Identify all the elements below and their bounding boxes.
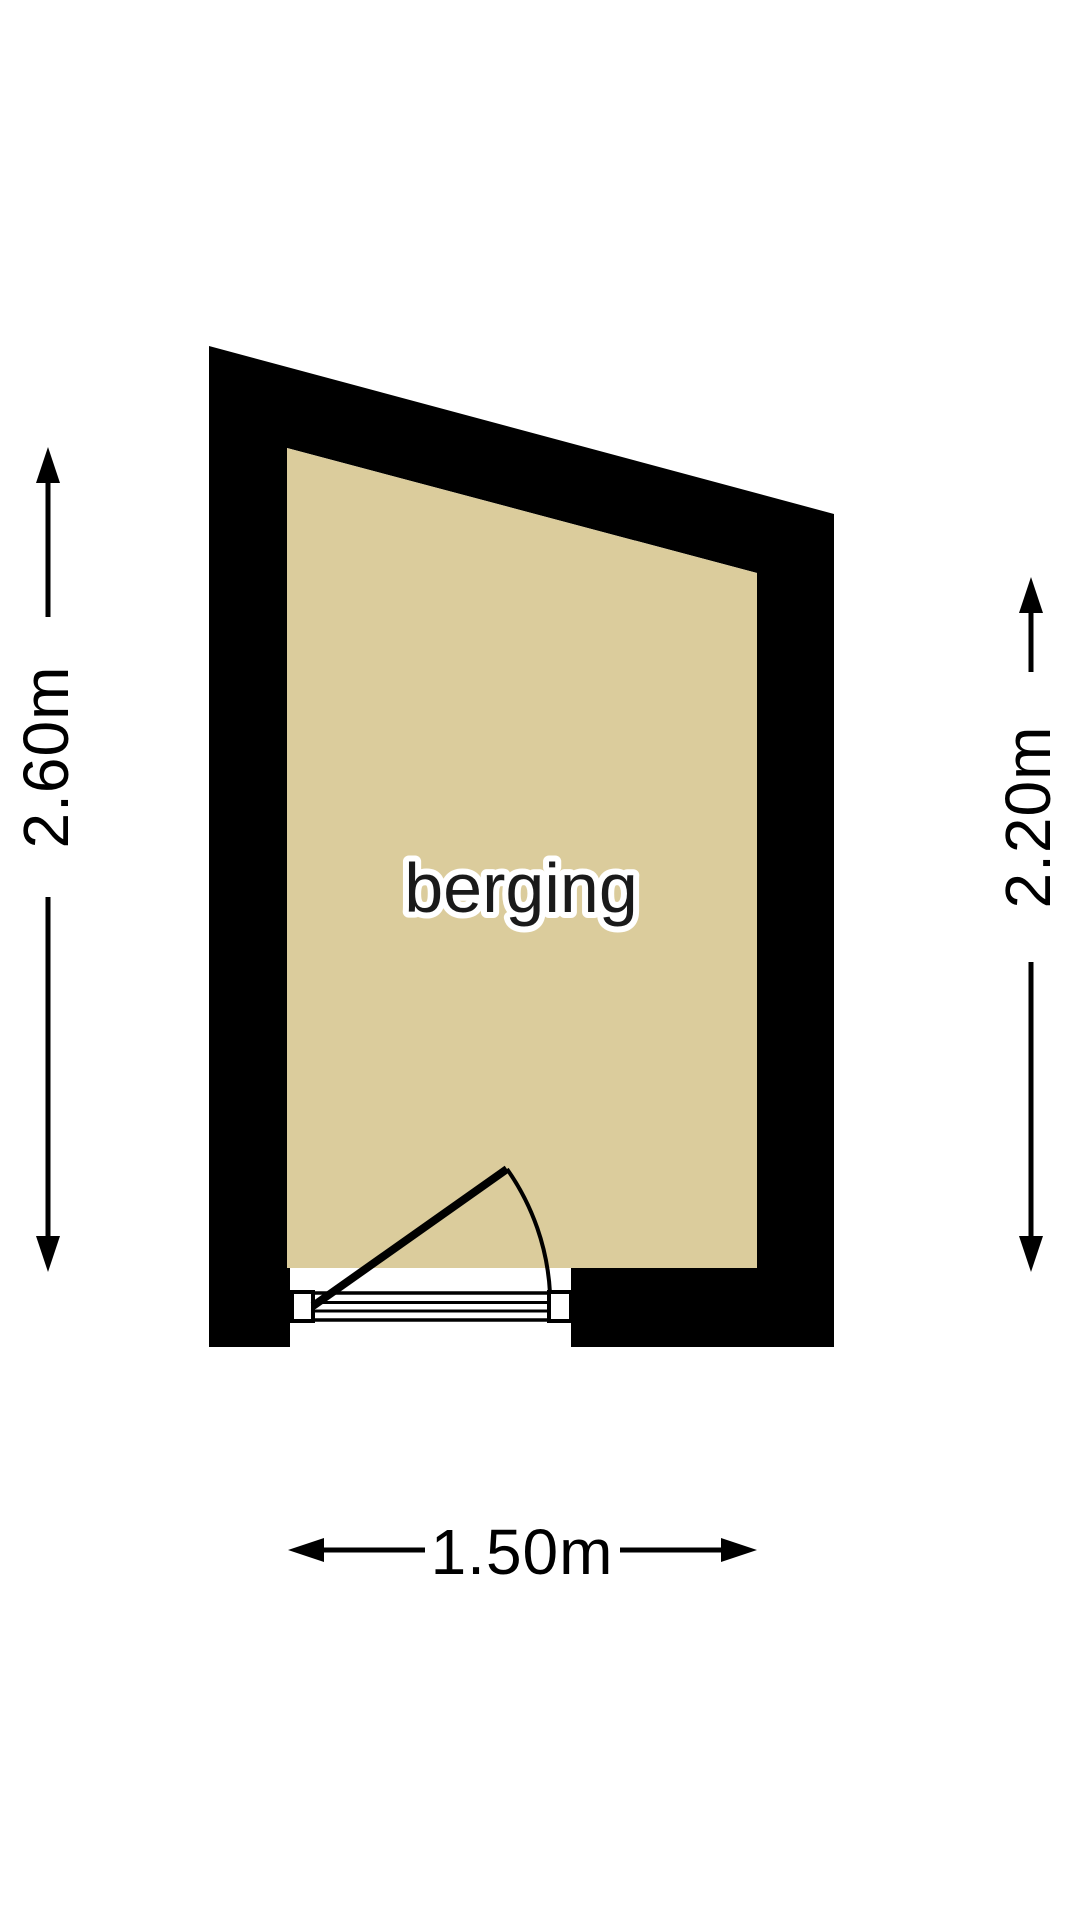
door-jamb-left	[292, 1292, 313, 1321]
door-jamb-right	[549, 1292, 571, 1321]
door-threshold	[313, 1293, 549, 1320]
floorplan-page: berging 2.60m 2.20m 1.50m	[0, 0, 1080, 1920]
dimension-label-left: 2.60m	[10, 666, 82, 849]
dimension-label-bottom: 1.50m	[431, 1516, 614, 1588]
floor-plan-canvas: berging 2.60m 2.20m 1.50m	[0, 0, 1080, 1920]
dimension-label-right: 2.20m	[992, 726, 1064, 909]
room-label-berging: berging	[404, 849, 638, 927]
